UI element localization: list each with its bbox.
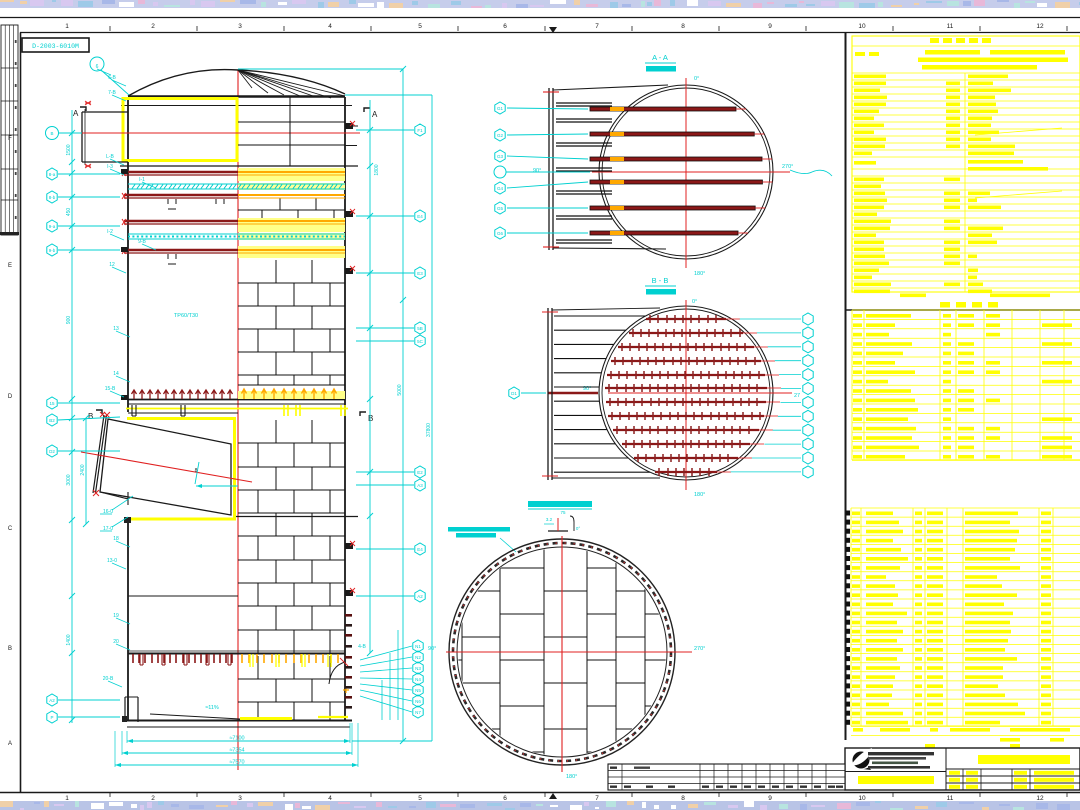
svg-text:8: 8: [195, 468, 198, 474]
svg-text:N6: N6: [415, 699, 421, 704]
svg-text:9: 9: [768, 23, 772, 30]
svg-text:270°: 270°: [694, 646, 705, 652]
svg-text:G1: G1: [497, 106, 504, 111]
svg-text:2: 2: [151, 795, 155, 802]
svg-text:A: A: [372, 110, 378, 119]
svg-text:P: P: [50, 715, 53, 720]
svg-text:90°: 90°: [428, 646, 436, 652]
svg-text:E: E: [8, 263, 12, 269]
svg-text:5000: 5000: [397, 384, 403, 395]
svg-text:A2: A2: [417, 594, 423, 599]
svg-text:180°: 180°: [566, 774, 577, 780]
svg-text:N3: N3: [415, 666, 421, 671]
svg-text:0°: 0°: [692, 299, 697, 305]
svg-text:9: 9: [768, 795, 772, 802]
svg-text:9-a: 9-a: [49, 224, 56, 229]
svg-text:11: 11: [947, 23, 954, 30]
svg-text:5B: 5B: [417, 326, 423, 331]
svg-text:5C: 5C: [417, 339, 424, 344]
svg-text:450: 450: [66, 208, 72, 217]
svg-text:2: 2: [151, 23, 155, 30]
svg-text:E3: E3: [417, 271, 423, 276]
svg-text:4: 4: [328, 23, 332, 30]
svg-text:D: D: [8, 394, 13, 400]
svg-text:B - B: B - B: [652, 276, 669, 285]
svg-text:8-a: 8-a: [49, 172, 56, 177]
svg-text:1500: 1500: [66, 144, 72, 155]
svg-text:270°: 270°: [782, 164, 793, 170]
svg-text:3: 3: [238, 23, 242, 30]
svg-text:1400: 1400: [66, 634, 72, 645]
svg-text:D-2003-6010M: D-2003-6010M: [32, 43, 79, 50]
svg-text:10: 10: [858, 23, 866, 30]
svg-text:1800: 1800: [374, 164, 380, 175]
svg-text:E4: E4: [417, 214, 423, 219]
svg-text:B2: B2: [49, 418, 55, 423]
svg-text:0°: 0°: [694, 76, 699, 82]
svg-text:10: 10: [858, 795, 866, 802]
svg-text:75: 75: [560, 510, 566, 515]
svg-text:N2: N2: [415, 655, 421, 660]
svg-text:12: 12: [1036, 795, 1044, 802]
svg-text:3000: 3000: [66, 474, 72, 485]
svg-text:A: A: [8, 741, 12, 747]
svg-text:27: 27: [794, 393, 800, 399]
svg-text:180°: 180°: [694, 492, 705, 498]
svg-text:B: B: [368, 414, 373, 423]
svg-text:D2: D2: [49, 449, 55, 454]
svg-text:2400: 2400: [80, 464, 86, 475]
svg-text:E2: E2: [417, 470, 423, 475]
svg-text:G2: G2: [497, 133, 504, 138]
svg-text:N7: N7: [415, 710, 421, 715]
svg-text:G5: G5: [497, 206, 504, 211]
svg-text:N1: N1: [415, 644, 421, 649]
svg-text:F: F: [8, 136, 12, 142]
svg-text:≈7354: ≈7354: [229, 748, 244, 754]
svg-text:180°: 180°: [694, 271, 705, 277]
svg-text:F1: F1: [417, 128, 423, 133]
svg-text:0°: 0°: [576, 526, 581, 531]
svg-text:A2: A2: [49, 698, 55, 703]
svg-text:B: B: [50, 131, 53, 136]
svg-text:G4: G4: [497, 186, 504, 191]
svg-text:37800: 37800: [426, 423, 432, 437]
svg-text:8: 8: [681, 795, 685, 802]
svg-text:B: B: [88, 412, 93, 421]
svg-text:6: 6: [503, 23, 507, 30]
svg-text:E4: E4: [417, 547, 423, 552]
svg-text:N5: N5: [415, 688, 421, 693]
svg-text:5: 5: [418, 23, 422, 30]
svg-text:90°: 90°: [533, 168, 541, 174]
svg-text:900: 900: [66, 316, 72, 325]
svg-text:3: 3: [238, 795, 242, 802]
svg-text:4-B: 4-B: [358, 644, 366, 650]
svg-text:5: 5: [418, 795, 422, 802]
svg-text:11: 11: [947, 795, 954, 802]
svg-text:15: 15: [49, 401, 55, 406]
svg-text:4: 4: [328, 795, 332, 802]
svg-text:A3: A3: [417, 483, 423, 488]
svg-text:D1: D1: [511, 391, 517, 396]
svg-text:≈7570: ≈7570: [229, 760, 244, 766]
svg-text:8-b: 8-b: [49, 195, 56, 200]
svg-text:G3: G3: [497, 154, 504, 159]
svg-text:≈7100: ≈7100: [229, 736, 244, 742]
svg-text:1: 1: [65, 795, 69, 802]
svg-text:TP60/T30: TP60/T30: [174, 313, 198, 319]
svg-text:B: B: [8, 646, 12, 652]
svg-text:≈11%: ≈11%: [205, 705, 219, 711]
svg-text:6: 6: [503, 795, 507, 802]
svg-text:A - A: A - A: [652, 53, 668, 62]
svg-text:8: 8: [681, 23, 685, 30]
svg-text:G6: G6: [497, 231, 504, 236]
svg-text:9-b: 9-b: [49, 248, 56, 253]
svg-text:12: 12: [1036, 23, 1044, 30]
svg-text:7: 7: [595, 795, 599, 802]
svg-text:N4: N4: [415, 677, 421, 682]
svg-text:C: C: [8, 526, 13, 532]
svg-text:3.2: 3.2: [546, 517, 553, 522]
svg-text:7: 7: [595, 23, 599, 30]
svg-text:A: A: [73, 109, 79, 118]
svg-text:1: 1: [65, 23, 69, 30]
